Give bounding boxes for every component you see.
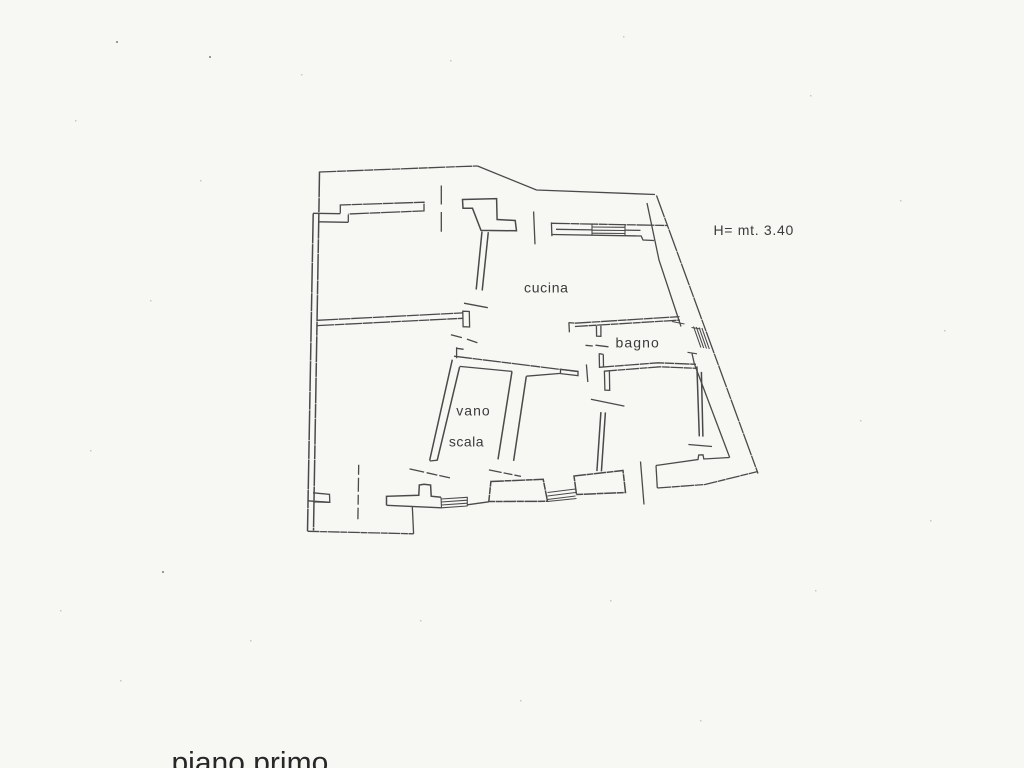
- svg-text:bagno: bagno: [616, 335, 660, 351]
- svg-text:H= mt. 3.40: H= mt. 3.40: [714, 222, 794, 238]
- svg-text:scala: scala: [449, 434, 484, 450]
- svg-text:vano: vano: [456, 403, 490, 419]
- svg-text:cucina: cucina: [524, 280, 569, 296]
- svg-text:piano primo: piano primo: [172, 747, 329, 768]
